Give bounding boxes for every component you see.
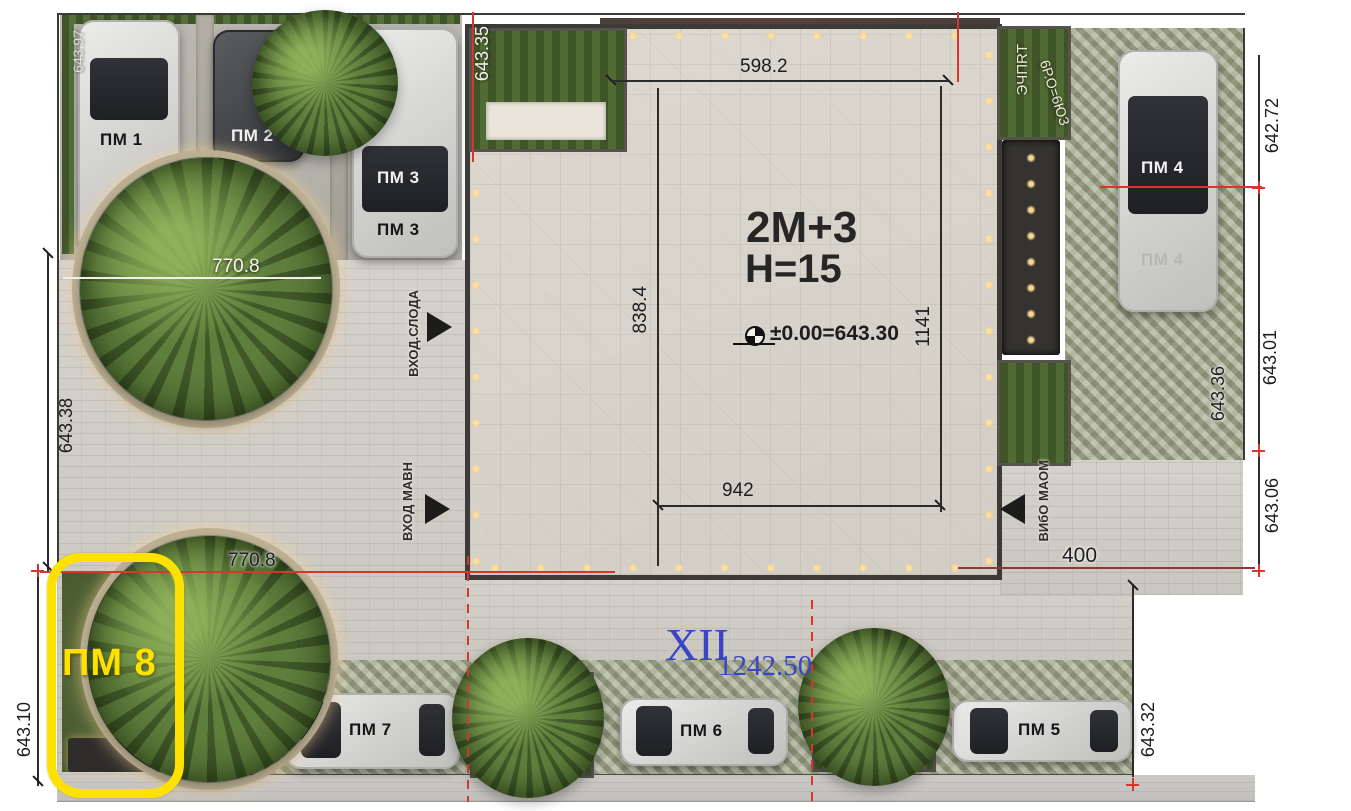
entrance-arrow-icon — [1000, 494, 1025, 524]
property-line-left — [57, 13, 59, 575]
dim-line-left-lower — [37, 568, 39, 786]
dim-right-setback: 400 — [1062, 544, 1097, 568]
dim-upper-tree-width: 770.8 — [212, 256, 260, 278]
elevation-bottom-right: 643.32 — [1138, 702, 1159, 757]
parking-spot-label-pm3-hood: ПМ 3 — [377, 220, 420, 240]
entrance-label-right: ВИбО МАОМ — [1036, 460, 1051, 541]
tree — [798, 628, 950, 786]
parking-spot-label-pm3-windshield: ПМ 3 — [377, 168, 420, 188]
dim-line-right — [1258, 55, 1260, 575]
planter-inner-paving — [486, 102, 606, 140]
parking-spot-label-pm5: ПМ 5 — [1018, 720, 1061, 740]
tree — [80, 158, 332, 420]
parking-spot-label-pm4-hood: ПМ 4 — [1141, 250, 1184, 270]
car-windshield — [90, 58, 168, 120]
car-pm6: ПМ 6 — [620, 698, 788, 766]
car-pm5: ПМ 5 — [952, 700, 1132, 762]
entrance-label-left-lower: ВХОД МАВН — [400, 462, 415, 541]
dim-line-inner-left — [657, 88, 659, 566]
planter-right-strip-bottom — [997, 360, 1071, 466]
site-plan: ПМ 1 ПМ 2 ПМ 3 ПМ 3 ПМ 4 ПМ 4 ПМ 5 ПМ 6 … — [0, 0, 1351, 811]
dim-line-left-upper — [47, 253, 49, 573]
level-mark-tail — [733, 343, 775, 345]
elevation-top-left: 643.97 — [70, 30, 86, 73]
dim-line-inner-bottom — [657, 505, 940, 507]
building-edge-lights-right — [984, 32, 994, 572]
car-rear-glass — [419, 704, 445, 756]
elevation-parking-inner: 643.36 — [1208, 366, 1229, 421]
parking-spot-label-pm1: ПМ 1 — [100, 130, 143, 150]
dim-inner-right-height: 1141 — [913, 306, 935, 347]
dim-inner-bottom-width: 942 — [722, 480, 754, 502]
car-pm4: ПМ 4 ПМ 4 — [1118, 50, 1218, 312]
dim-red-cross — [1252, 444, 1265, 457]
elevation-right-upper: 643.01 — [1260, 330, 1281, 385]
dim-top-width: 598.2 — [740, 56, 788, 78]
dim-red-cross — [1126, 778, 1139, 791]
red-line-vertical-b — [957, 12, 959, 82]
building-level-mark: ±0.00=643.30 — [770, 322, 899, 346]
property-line-top — [57, 13, 1245, 15]
frontage-length-label: 1242.50 — [718, 650, 812, 683]
elevation-right-top: 642.72 — [1262, 98, 1283, 153]
elevation-right-lower: 643.06 — [1262, 478, 1283, 533]
dim-line-upper-tree — [63, 277, 321, 279]
car-windshield — [636, 706, 672, 756]
entrance-label-left-upper: ВХОД.СЛОДА — [406, 290, 421, 377]
tree — [452, 638, 604, 798]
parking-spot-label-pm4-roof: ПМ 4 — [1141, 158, 1184, 178]
car-roof-glass — [1128, 96, 1208, 214]
elevation-left: 643.38 — [56, 398, 77, 453]
entrance-arrow-icon — [425, 494, 450, 524]
dim-red-cross — [1252, 564, 1265, 577]
elevation-bottom-left: 643.10 — [14, 702, 35, 757]
car-rear-glass — [748, 708, 774, 754]
parking-spot-label-pm2: ПМ 2 — [231, 126, 274, 146]
dim-inner-left-height: 838.4 — [630, 286, 652, 334]
car-windshield — [970, 708, 1008, 754]
parking-spot-label-pm6: ПМ 6 — [680, 721, 723, 741]
car-rear-glass — [1090, 710, 1118, 752]
tree — [252, 10, 398, 156]
dim-line-top-width — [610, 80, 948, 82]
elevation-courtyard-top: 643.35 — [472, 26, 493, 81]
building-storeys-label: 2M+3 — [746, 203, 857, 253]
building-height-label: H=15 — [745, 247, 842, 292]
parking-spot-label-pm7: ПМ 7 — [349, 720, 392, 740]
red-dashed-axis-b — [811, 600, 813, 802]
entrance-arrow-icon — [427, 312, 452, 342]
red-line-right-top — [1100, 186, 1262, 188]
dim-line-right-setback — [958, 567, 1255, 569]
garbled-label-vertical: ЭЧПRТ — [1014, 44, 1031, 96]
dim-line-inner-right — [940, 86, 942, 512]
trellis-lights — [1026, 145, 1036, 350]
parking-spot-label-pm8: ПМ 8 — [62, 642, 157, 685]
red-dashed-axis-a — [467, 556, 469, 802]
dim-line-bottom-right — [1132, 585, 1134, 777]
dim-lower-tree-width: 770.8 — [228, 550, 276, 572]
